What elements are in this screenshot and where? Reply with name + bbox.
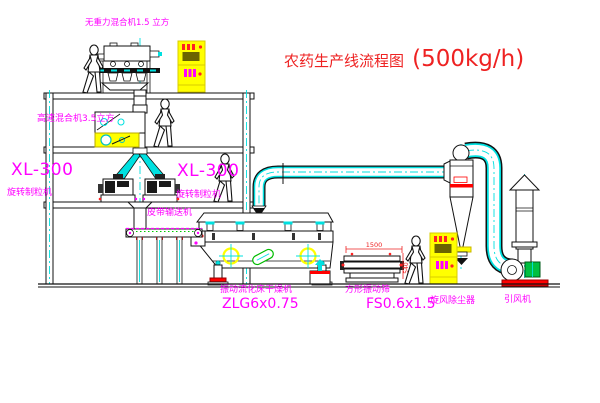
granulator-unit-left [98, 174, 137, 202]
exhaust-duct-to-cyclone [252, 163, 450, 216]
granulator-left-name: 旋转制粒机 [7, 186, 52, 198]
fan-label: 引风机 [504, 293, 531, 305]
control-cabinet-right [430, 233, 457, 284]
worker-figure [154, 99, 174, 147]
induced-draft-fan [501, 259, 548, 286]
granulator-right-name: 旋转制粒机 [176, 188, 221, 200]
exhaust-stack [510, 175, 539, 263]
granulator-right-model: XL-300 [177, 161, 239, 181]
high-speed-mixer-label: 高速混合机3.5立方 [37, 112, 114, 124]
belt-conveyor [126, 229, 202, 285]
cyclone-label: 旋风除尘器 [430, 294, 475, 306]
drawing-title: 农药生产线流程图 (500kg/h) [284, 46, 524, 72]
fan-base [502, 280, 548, 286]
conveyor-legs [136, 237, 183, 284]
worker-figure [405, 236, 425, 284]
control-cabinet-top [178, 41, 205, 92]
top-mixer-label: 无重力混合机1.5 立方 [85, 17, 169, 28]
ground-line [38, 284, 560, 287]
cad-process-flow-drawing: 1500 540 [0, 0, 600, 403]
dryer-model-label: ZLG6x0.75 [222, 296, 299, 312]
high-speed-mixer [95, 105, 147, 154]
sieve-model-label: FS0.6x1.5 [366, 296, 436, 312]
drawing-canvas: 1500 540 [0, 0, 600, 403]
dryer-name-label: 振动流化床干燥机 [220, 283, 292, 295]
granulator-unit-right [143, 174, 180, 202]
worker-figure [83, 45, 103, 93]
granulator-left-model: XL-300 [11, 160, 73, 180]
sieve-name-label: 方形振动筛 [345, 283, 390, 295]
belt-conveyor-label: 皮带输送机 [147, 206, 192, 218]
sieve-width-dimension: 1500 [366, 241, 383, 249]
